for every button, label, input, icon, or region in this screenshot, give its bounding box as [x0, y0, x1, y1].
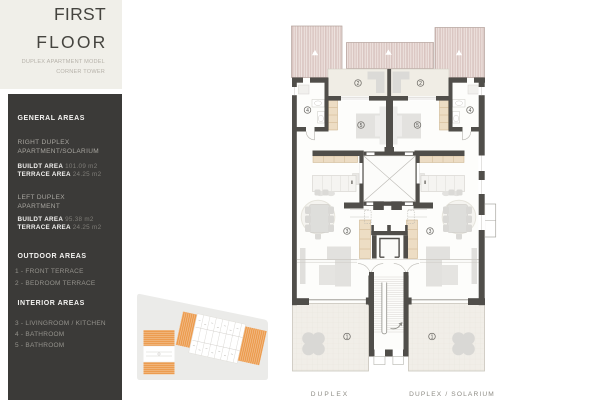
svg-text:1: 1 — [346, 334, 349, 340]
svg-text:1: 1 — [431, 334, 434, 340]
svg-text:2: 2 — [357, 81, 360, 87]
svg-text:5: 5 — [360, 123, 363, 129]
svg-text:3: 3 — [429, 229, 432, 235]
svg-text:DUPLEX / SOLARIUM: DUPLEX / SOLARIUM — [409, 391, 495, 398]
svg-text:4: 4 — [306, 108, 309, 114]
svg-text:4: 4 — [469, 108, 472, 114]
svg-text:2: 2 — [419, 81, 422, 87]
svg-text:3: 3 — [346, 229, 349, 235]
svg-text:5: 5 — [416, 123, 419, 129]
svg-text:DUPLEX: DUPLEX — [311, 391, 349, 398]
